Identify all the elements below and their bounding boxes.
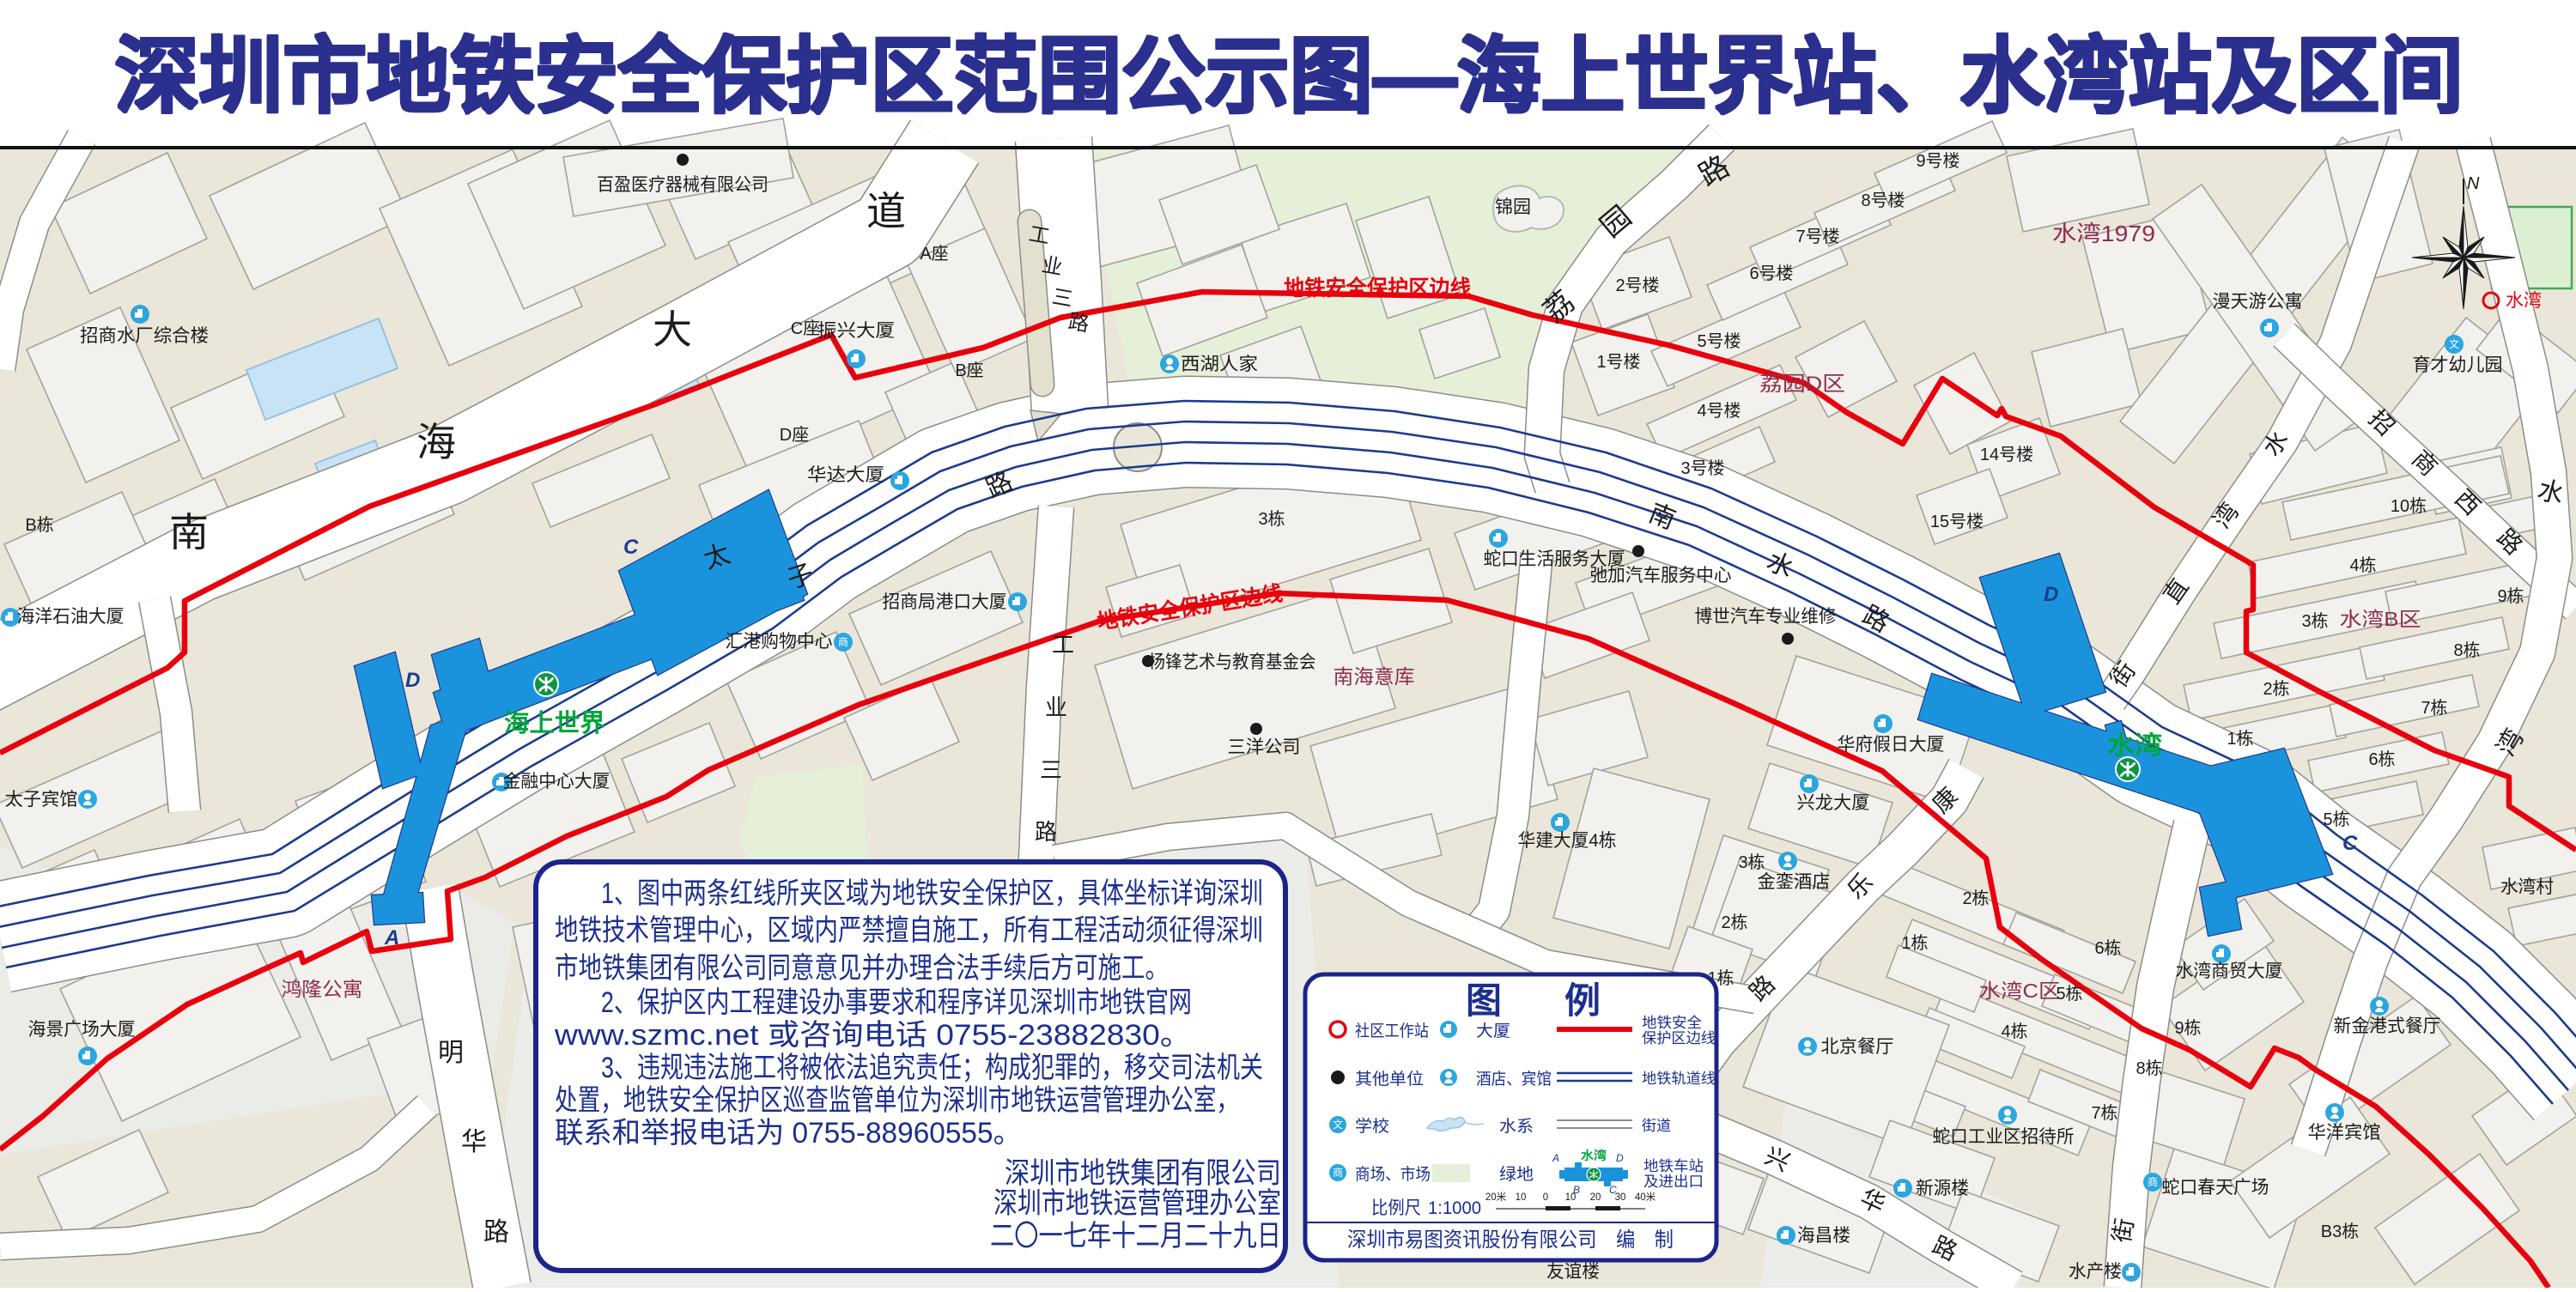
svg-text:2、保护区内工程建设办事要求和程序详见深圳市地铁官网: 2、保护区内工程建设办事要求和程序详见深圳市地铁官网 [555,986,1192,1019]
svg-text:7栋: 7栋 [2421,698,2447,718]
svg-text:7栋: 7栋 [2091,1103,2117,1123]
svg-text:北京餐厅: 北京餐厅 [1821,1037,1894,1057]
svg-text:深圳市地铁集团有限公司: 深圳市地铁集团有限公司 [1005,1157,1281,1190]
svg-text:兴龙大厦: 兴龙大厦 [1797,793,1870,813]
svg-text:商: 商 [1333,1166,1343,1179]
svg-text:3栋: 3栋 [1738,852,1765,872]
svg-text:水产楼: 水产楼 [2069,1262,2122,1282]
svg-text:7号楼: 7号楼 [1795,227,1839,246]
svg-text:大厦: 大厦 [1476,1022,1510,1040]
svg-text:路: 路 [483,1218,509,1247]
svg-text:鸿隆公寓: 鸿隆公寓 [282,978,363,1000]
svg-text:4栋: 4栋 [2001,1022,2027,1041]
svg-text:2栋: 2栋 [2263,679,2289,699]
svg-text:荔园D区: 荔园D区 [1759,373,1845,396]
svg-text:南: 南 [169,510,209,555]
svg-text:海洋石油大厦: 海洋石油大厦 [17,607,125,627]
svg-text:金融中心大厦: 金融中心大厦 [503,772,611,792]
svg-text:明: 明 [438,1039,464,1067]
svg-text:育才幼儿园: 育才幼儿园 [2413,355,2503,375]
svg-text:30: 30 [1615,1192,1626,1203]
svg-text:9栋: 9栋 [2497,586,2524,606]
svg-text:三洋公司: 三洋公司 [1228,737,1301,757]
svg-text:9栋: 9栋 [2174,1018,2201,1038]
svg-text:20米: 20米 [1485,1192,1507,1203]
svg-text:地铁轨道线: 地铁轨道线 [1642,1071,1716,1087]
svg-text:漫天游公寓: 漫天游公寓 [2213,292,2303,312]
svg-text:5栋: 5栋 [2323,810,2349,829]
svg-text:文: 文 [2449,337,2459,350]
svg-text:华: 华 [461,1128,487,1156]
svg-text:处置，地铁安全保护区巡查监管单位为深圳市地铁运营管理办公室，: 处置，地铁安全保护区巡查监管单位为深圳市地铁运营管理办公室， [555,1084,1239,1117]
svg-text:水湾村: 水湾村 [2500,877,2554,897]
svg-text:C: C [2342,832,2358,855]
svg-text:8栋: 8栋 [2453,640,2480,660]
svg-text:海景广场大厦: 海景广场大厦 [28,1020,136,1040]
svg-text:金銮酒店: 金銮酒店 [1758,872,1831,892]
svg-text:华府假日大厦: 华府假日大厦 [1838,735,1945,755]
svg-text:水湾C区: 水湾C区 [1979,980,2061,1002]
svg-text:路: 路 [1066,310,1091,337]
svg-text:C: C [623,536,639,559]
svg-text:D: D [2044,583,2058,606]
svg-text:4栋: 4栋 [2349,555,2376,575]
svg-text:水湾: 水湾 [2107,731,2162,760]
svg-text:14号楼: 14号楼 [1980,445,2033,464]
svg-text:8号楼: 8号楼 [1861,191,1905,210]
svg-text:保护区边线: 保护区边线 [1642,1030,1716,1046]
svg-text:6栋: 6栋 [2094,938,2121,958]
svg-text:图: 图 [1466,980,1502,1021]
svg-text:工: 工 [1052,632,1074,658]
svg-text:D: D [405,669,420,692]
svg-text:10: 10 [1565,1192,1577,1203]
svg-text:A: A [384,926,399,949]
svg-text:水湾: 水湾 [2506,291,2542,311]
svg-text:A座: A座 [920,244,948,264]
svg-text:0: 0 [1543,1192,1548,1203]
svg-text:其他单位: 其他单位 [1355,1070,1424,1089]
svg-text:商场、市场: 商场、市场 [1355,1165,1431,1184]
svg-text:百盈医疗器械有限公司: 百盈医疗器械有限公司 [597,175,769,195]
svg-text:路: 路 [1035,819,1057,845]
svg-text:水湾1979: 水湾1979 [2052,221,2155,246]
svg-text:二〇一七年十二月二十九日: 二〇一七年十二月二十九日 [990,1220,1281,1253]
svg-text:1栋: 1栋 [1901,933,1928,953]
svg-text:三: 三 [1040,757,1062,783]
svg-text:工: 工 [1027,222,1051,249]
svg-text:振兴大厦: 振兴大厦 [817,321,895,341]
svg-text:海昌楼: 海昌楼 [1797,1226,1850,1246]
svg-text:华洋宾馆: 华洋宾馆 [2308,1123,2381,1143]
svg-text:15号楼: 15号楼 [1930,512,1984,531]
svg-text:三: 三 [1050,285,1074,312]
svg-text:5号楼: 5号楼 [1697,331,1741,351]
svg-text:华达大厦: 华达大厦 [807,465,884,485]
svg-text:3栋: 3栋 [1258,509,1285,529]
svg-text:锦园: 锦园 [1495,197,1531,217]
svg-text:汇港购物中心: 汇港购物中心 [726,632,833,652]
svg-text:联系和举报电话为 0755-88960555。: 联系和举报电话为 0755-88960555。 [555,1117,1022,1149]
svg-text:道: 道 [866,189,906,234]
svg-text:新金港式餐厅: 新金港式餐厅 [2334,1016,2441,1036]
svg-text:20: 20 [1590,1192,1601,1203]
svg-text:业: 业 [1045,695,1067,720]
svg-text:3号楼: 3号楼 [1680,458,1724,478]
svg-text:商: 商 [838,635,848,648]
svg-text:地铁车站: 地铁车站 [1643,1158,1704,1174]
svg-text:海上世界: 海上世界 [504,709,605,737]
svg-text:5栋: 5栋 [2056,984,2082,1004]
svg-text:B3栋: B3栋 [2321,1222,2359,1241]
svg-text:杨锋艺术与教育基金会: 杨锋艺术与教育基金会 [1149,652,1316,672]
svg-text:招商水厂综合楼: 招商水厂综合楼 [80,326,209,346]
svg-text:4号楼: 4号楼 [1697,401,1741,421]
svg-text:9号楼: 9号楼 [1916,151,1959,171]
svg-text:10: 10 [1516,1192,1527,1203]
svg-text:水湾商贸大厦: 水湾商贸大厦 [2176,961,2283,981]
svg-text:街道: 街道 [1642,1118,1671,1134]
svg-text:6号楼: 6号楼 [1749,264,1793,283]
svg-text:南海意库: 南海意库 [1334,665,1415,688]
svg-text:深圳市易图资讯股份有限公司 编 制: 深圳市易图资讯股份有限公司 编 制 [1347,1228,1674,1252]
svg-text:B栋: B栋 [25,515,53,535]
svg-text:社区工作站: 社区工作站 [1355,1022,1429,1040]
svg-text:地铁技术管理中心，区域内严禁擅自施工，所有工程活动须征得深圳: 地铁技术管理中心，区域内严禁擅自施工，所有工程活动须征得深圳 [555,914,1263,947]
svg-text:博世汽车专业维修: 博世汽车专业维修 [1695,607,1837,627]
svg-text:2栋: 2栋 [1962,889,1989,908]
svg-text:1栋: 1栋 [2227,729,2253,749]
svg-text:大: 大 [653,307,692,352]
svg-text:西湖人家: 西湖人家 [1181,355,1258,374]
svg-text:酒店、宾馆: 酒店、宾馆 [1476,1070,1552,1089]
svg-text:海: 海 [416,420,456,464]
svg-text:40米: 40米 [1635,1192,1656,1203]
svg-text:D: D [1616,1152,1624,1164]
svg-text:水系: 水系 [1499,1117,1534,1136]
svg-text:太子宾馆: 太子宾馆 [5,790,78,810]
svg-text:地铁安全: 地铁安全 [1642,1015,1702,1031]
svg-text:2栋: 2栋 [1721,913,1747,932]
svg-text:比例尺: 比例尺 [1371,1198,1421,1218]
svg-text:1:1000: 1:1000 [1428,1198,1481,1218]
svg-text:绿地: 绿地 [1499,1165,1534,1184]
svg-text:10栋: 10栋 [2391,496,2427,516]
svg-text:华建大厦4栋: 华建大厦4栋 [1518,831,1617,851]
svg-text:市地铁集团有限公司同意意见并办理合法手续后方可施工。: 市地铁集团有限公司同意意见并办理合法手续后方可施工。 [555,952,1169,985]
svg-text:3、违规违法施工将被依法追究责任；构成犯罪的，移交司法机关: 3、违规违法施工将被依法追究责任；构成犯罪的，移交司法机关 [555,1052,1263,1084]
svg-text:街: 街 [2108,1216,2138,1245]
svg-text:B座: B座 [955,361,983,380]
svg-text:6栋: 6栋 [2368,749,2395,769]
svg-text:例: 例 [1564,980,1601,1021]
svg-text:学校: 学校 [1355,1117,1389,1136]
svg-text:友谊楼: 友谊楼 [1546,1262,1600,1282]
svg-text:A: A [1552,1152,1559,1164]
svg-text:弛加汽车服务中心: 弛加汽车服务中心 [1590,566,1732,585]
svg-text:招商局港口大厦: 招商局港口大厦 [883,592,1007,612]
svg-text:N: N [2467,174,2480,193]
svg-text:业: 业 [1040,253,1064,280]
svg-text:文: 文 [1333,1118,1343,1131]
svg-text:地铁安全保护区边线: 地铁安全保护区边线 [1284,276,1471,300]
svg-text:商: 商 [2148,1175,2158,1188]
svg-text:1、图中两条红线所夹区域为地铁安全保护区，具体坐标详询深圳: 1、图中两条红线所夹区域为地铁安全保护区，具体坐标详询深圳 [555,877,1263,910]
svg-text:C座: C座 [791,318,820,338]
svg-text:水湾: 水湾 [1581,1149,1607,1162]
svg-text:新源楼: 新源楼 [1916,1179,1969,1198]
svg-text:3栋: 3栋 [2301,611,2328,631]
svg-text:2号楼: 2号楼 [1615,276,1659,295]
svg-text:深圳市地铁安全保护区范围公示图—海上世界站、水湾站及区间: 深圳市地铁安全保护区范围公示图—海上世界站、水湾站及区间 [115,30,2464,124]
svg-text:8栋: 8栋 [2136,1058,2162,1078]
svg-text:及进出口: 及进出口 [1643,1174,1704,1190]
svg-text:蛇口工业区招待所: 蛇口工业区招待所 [1933,1127,2075,1147]
svg-text:www.szmc.net 或咨询电话 0755-238828: www.szmc.net 或咨询电话 0755-23882830。 [554,1019,1192,1052]
svg-text:1号楼: 1号楼 [1596,352,1640,372]
svg-text:水湾B区: 水湾B区 [2340,608,2421,630]
svg-text:深圳市地铁运营管理办公室: 深圳市地铁运营管理办公室 [993,1187,1281,1220]
svg-text:D座: D座 [780,425,809,445]
svg-text:蛇口春天广场: 蛇口春天广场 [2162,1178,2269,1198]
